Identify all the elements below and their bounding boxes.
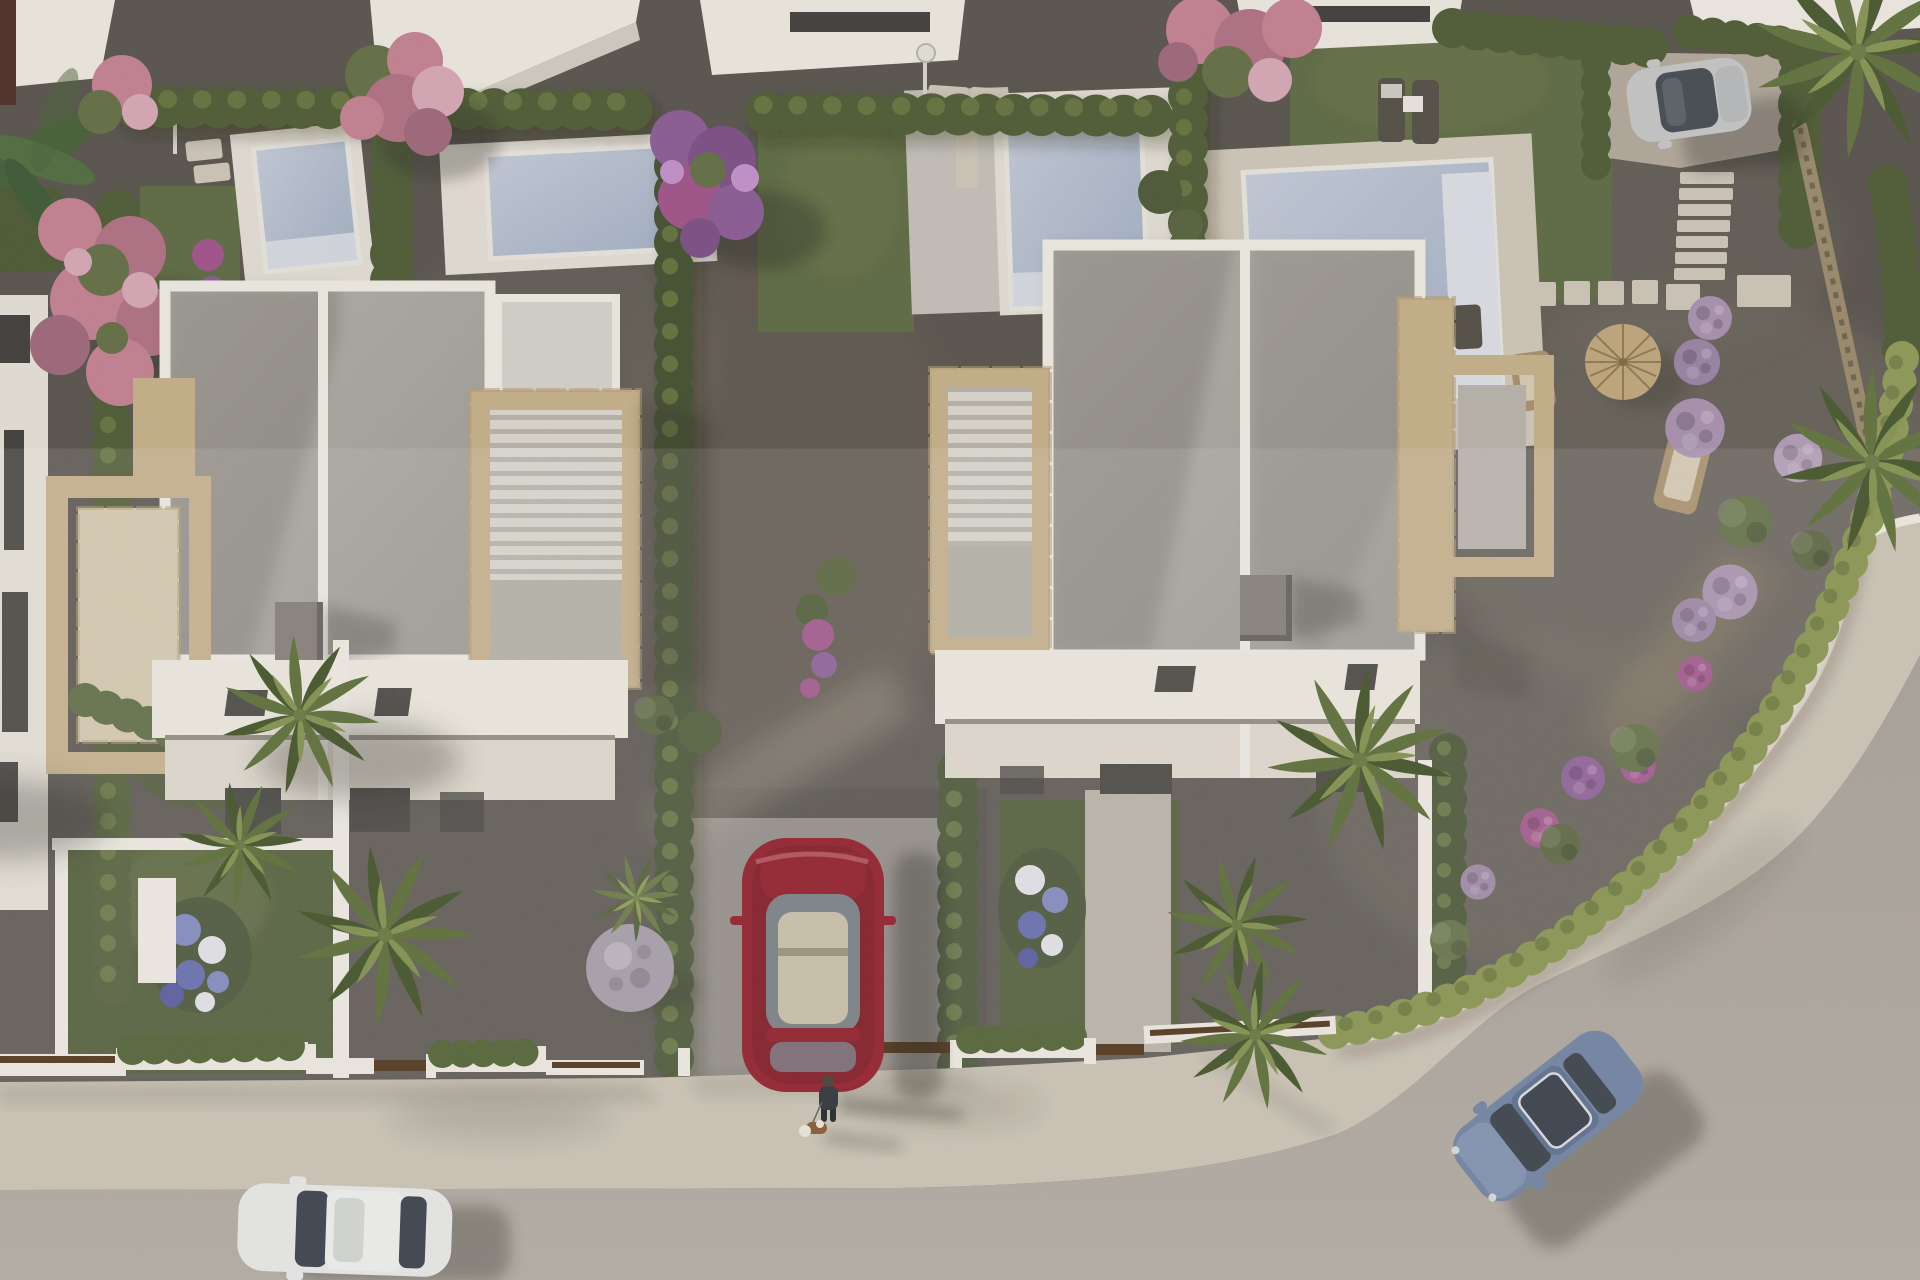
aerial-render: [0, 0, 1920, 1280]
scene-canvas: [0, 0, 1920, 1280]
lighting-overlays: [0, 0, 1920, 1280]
